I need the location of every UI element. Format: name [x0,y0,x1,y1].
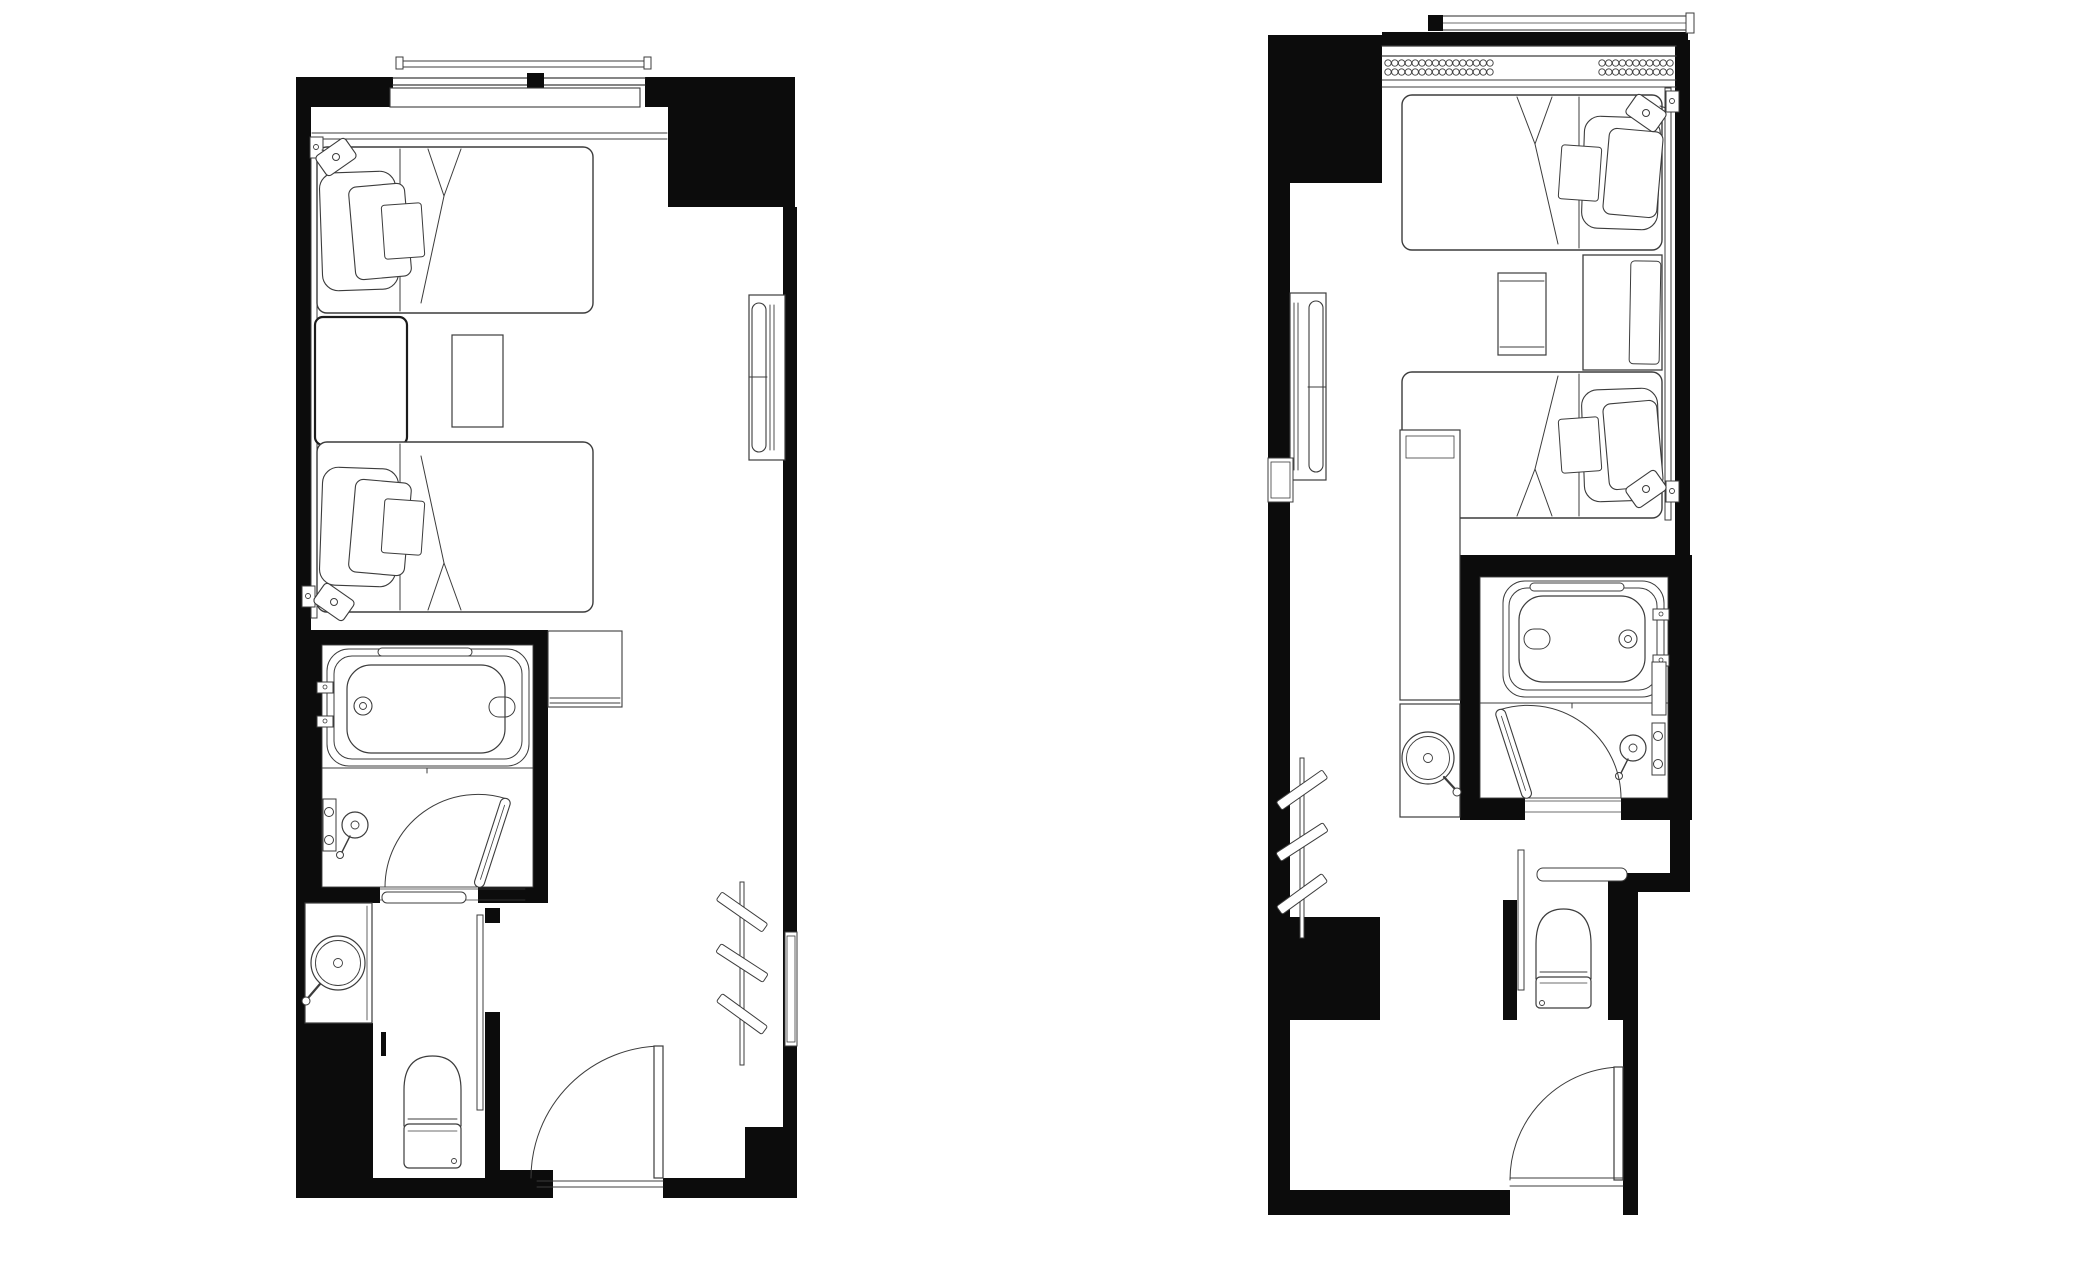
curtain-loop [1432,60,1438,66]
towel-bar [382,892,466,903]
grab-bar [378,648,472,656]
curtain-loop [1473,60,1479,66]
pillow [1602,128,1663,218]
basin-lever-knob [302,997,310,1005]
shower-panel [1652,723,1665,775]
rail-end [644,57,651,69]
curtain-loop [1619,60,1625,66]
folded-towel [1558,417,1602,474]
curtain-loop [1612,60,1618,66]
curtain-loop [1633,69,1639,75]
shower-handle [1621,759,1628,773]
rail-end [1686,13,1694,33]
nightstand [315,317,407,445]
wall [1268,917,1380,1020]
curtain-loop [1392,60,1398,66]
bathroom-wall [305,887,380,903]
curtain-loop [1432,69,1438,75]
curtain-loop [1439,60,1445,66]
bathroom-wall [1460,577,1480,820]
floor-plan-sheet [0,0,2082,1267]
wall [1608,892,1638,1020]
curtain-loop [1412,69,1418,75]
shower-head [1620,735,1646,761]
wall [745,1127,797,1198]
curtain-loop [1640,69,1646,75]
floor-plan-room-b [1268,13,1694,1215]
curtain-loop [1446,60,1452,66]
curtain-loop [1667,60,1673,66]
tub-valve [317,682,333,693]
wall-pillar [668,107,795,207]
curtain [1599,60,1673,66]
shower-handle [342,836,350,852]
curtain-loop [1653,60,1659,66]
curtain-loop [1473,69,1479,75]
control-panel [1652,662,1666,715]
wall [485,908,500,923]
curtain-loop [1667,69,1673,75]
curtain-loop [1398,60,1404,66]
folded-towel [1558,145,1602,202]
curtain-loop [1653,69,1659,75]
folded-towel [381,499,425,556]
storage-cabinet [548,631,622,707]
wall [1670,820,1690,873]
window-mullion [527,73,544,89]
bathroom-wall [305,630,547,645]
nightstand-runner [1629,261,1661,365]
entry-door-swing [531,1046,663,1178]
wall [485,1012,500,1170]
wall [296,630,322,903]
wall [1268,183,1290,458]
wall-lamp-base [1666,91,1679,112]
bath-door-bar [1501,716,1525,790]
wall [1503,900,1517,1020]
curtain-loop [1405,60,1411,66]
bathroom-wall [1480,798,1525,820]
basin [1402,732,1454,784]
wall-lamp-base [302,586,315,607]
curtain-loop [1412,60,1418,66]
curtain-loop [1599,60,1605,66]
side-table [1498,273,1546,355]
curtain-loop [1480,69,1486,75]
curtain-loop [1640,60,1646,66]
bathroom-wall [1621,798,1692,820]
side-table [452,335,503,427]
curtain-loop [1480,60,1486,66]
rail-post [1428,15,1443,31]
shower-head [342,812,368,838]
wall [296,107,311,630]
shower-handle-knob [337,852,344,859]
shower-panel [323,799,336,851]
curtain-loop [1426,60,1432,66]
wall [296,77,393,107]
curtain-loop [1606,60,1612,66]
entry-door-leaf [1614,1067,1623,1180]
curtain-loop [1646,69,1652,75]
toilet-bowl [1536,909,1591,979]
curtain-loop [1439,69,1445,75]
curtain-loop [1599,69,1605,75]
wall [1623,1190,1638,1215]
rail-end [396,57,403,69]
curtain-loop [1385,69,1391,75]
curtain-loop [1419,60,1425,66]
curtain-loop [1419,69,1425,75]
tub-spout [1619,630,1637,648]
curtain [1385,69,1493,75]
folded-towel [381,203,425,260]
curtain [1385,60,1493,66]
toilet-bowl [404,1056,461,1126]
pocket-door [477,915,483,1110]
basin [311,936,365,990]
headboard [1665,88,1671,520]
wall [373,1178,537,1198]
wall [1268,1190,1510,1215]
curtain-loop [1660,60,1666,66]
curtain-loop [1460,60,1466,66]
wall [1268,1020,1290,1190]
pocket-door [1518,850,1524,990]
tub-valve [1653,609,1669,620]
window-sill [390,88,640,107]
door-stop [381,1032,386,1056]
wall [1268,35,1382,183]
curtain-loop [1626,69,1632,75]
bathtub-surround [1503,581,1664,697]
wall [296,1023,373,1198]
bath-door-bar [480,805,504,879]
bathroom-wall [478,887,548,903]
tub-spout [354,697,372,715]
wall [645,77,795,107]
bathroom-wall [1460,555,1692,577]
curtain [1599,69,1673,75]
bathroom-wall [1668,577,1692,798]
curtain-loop [1612,69,1618,75]
curtain-loop [1392,69,1398,75]
curtain-loop [1398,69,1404,75]
floor-plan-room-a [296,57,797,1198]
floor-plans-canvas [0,0,2082,1267]
vanity-counter [1400,430,1460,700]
wall-lamp-base [1666,481,1679,502]
tub-valve [317,716,333,727]
curtain-loop [1426,69,1432,75]
wall-niche [1268,458,1293,502]
curtain-loop [1466,69,1472,75]
curtain-loop [1487,60,1493,66]
curtain-loop [1405,69,1411,75]
curtain-loop [1619,69,1625,75]
basin-lever-knob [1453,788,1461,796]
curtain-loop [1453,60,1459,66]
wall [1382,32,1688,46]
tv-screen [752,303,766,452]
curtain-loop [1626,60,1632,66]
wall [296,903,305,1023]
curtain-loop [1646,60,1652,66]
entry-door-leaf [654,1046,663,1178]
towel-bar [1537,868,1627,881]
curtain-loop [1385,60,1391,66]
bathroom-wall [533,630,548,903]
curtain-loop [1606,69,1612,75]
wall [1623,1020,1638,1190]
curtain-loop [1660,69,1666,75]
grab-bar [1530,583,1624,591]
tv-screen [1309,301,1323,472]
curtain-loop [1453,69,1459,75]
entry-door-swing [1510,1067,1623,1180]
curtain-loop [1446,69,1452,75]
curtain-loop [1633,60,1639,66]
curtain-loop [1460,69,1466,75]
wall [1675,40,1690,555]
curtain-loop [1487,69,1493,75]
curtain-loop [1466,60,1472,66]
